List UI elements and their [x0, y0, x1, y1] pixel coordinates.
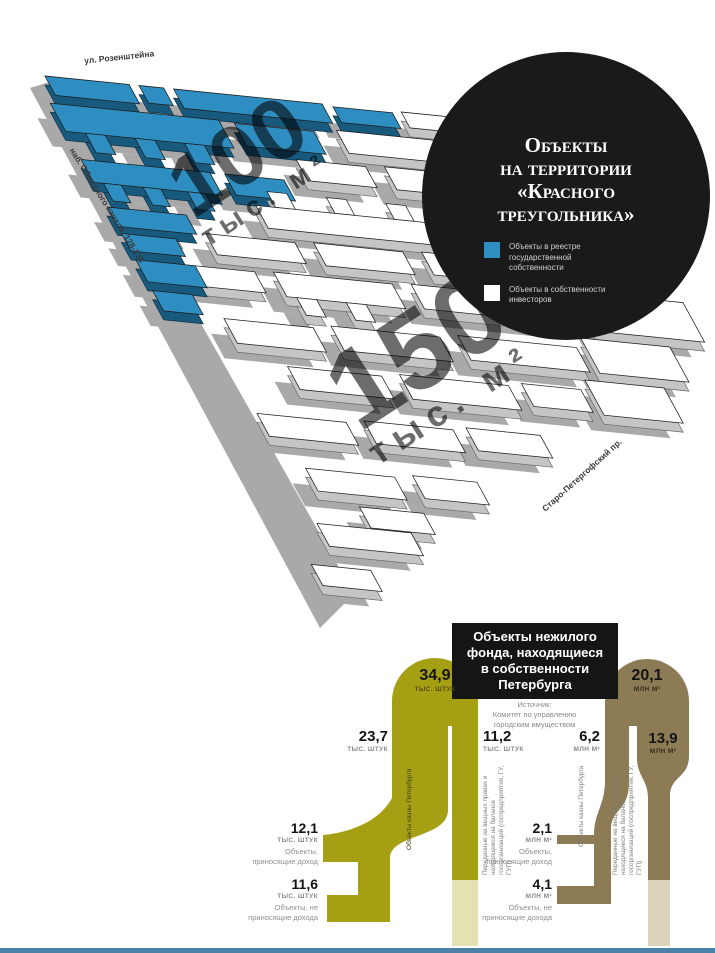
left-kazna-rotated-label: Объекты казны Петербурга — [406, 750, 414, 850]
unit: млн м² — [637, 748, 689, 755]
chart-source: Источник: Комитет по управлению городски… — [462, 700, 607, 730]
left-profitable-value: 12,1 тыс. штук Объекты, приносящие доход — [243, 820, 318, 866]
callout-title: Объекты на территории «Красного треуголь… — [422, 134, 710, 226]
bottom-accent-bar — [0, 948, 715, 953]
right-total-value: 20,1 млн м² — [605, 667, 689, 693]
value: 23,7 — [359, 728, 388, 745]
callout-circle: Объекты на территории «Красного треуголь… — [422, 52, 710, 340]
callout-title-line: на территории — [422, 157, 710, 180]
unit: тыс. штук — [318, 746, 388, 753]
chart-title-line: в собственности — [454, 661, 616, 677]
chart-title-line: Петербурга — [454, 677, 616, 693]
source-line: Комитет по управлению — [462, 710, 607, 720]
value: 20,1 — [631, 667, 662, 684]
legend-label-investors: Объекты в собственности инвесторов — [509, 285, 621, 306]
unit: тыс. штук — [392, 686, 478, 693]
right-transferred-value: 13,9 млн м² — [637, 730, 689, 755]
pipe-right-transferred-pale — [648, 880, 670, 946]
legend-swatch-investors-white — [484, 285, 500, 301]
legend-item-state: Объекты в реестре государственной собств… — [484, 242, 710, 274]
unit: млн м² — [477, 837, 552, 844]
left-total-value: 34,9 тыс. штук — [392, 667, 478, 693]
label-text: Объекты казны Петербурга — [406, 750, 414, 850]
right-kazna-value: 6,2 млн м² — [533, 728, 600, 753]
callout-title-line: «Красного — [422, 180, 710, 203]
category-label: Объекты, не приносящие дохода — [243, 903, 318, 922]
legend-item-investors: Объекты в собственности инвесторов — [484, 285, 710, 306]
left-kazna-value: 23,7 тыс. штук — [318, 728, 388, 753]
value: 34,9 — [419, 667, 450, 684]
callout-title-line: Объекты — [422, 134, 710, 157]
right-kazna-rotated-label: Объекты казны Петербурга — [578, 747, 586, 847]
pipe-left-transferred — [452, 726, 478, 880]
unit: млн м² — [477, 893, 552, 900]
category-label: Объекты, не приносящие дохода — [477, 903, 552, 922]
pipe-left-transferred-pale — [452, 880, 478, 946]
chart-title-line: фонда, находящиеся — [454, 645, 616, 661]
label-text: Переданные на вещных правах и находящиес… — [612, 755, 644, 875]
legend-label-state: Объекты в реестре государственной собств… — [509, 242, 621, 274]
value: 11,6 — [292, 876, 318, 892]
left-unprofitable-value: 11,6 тыс. штук Объекты, не приносящие до… — [243, 876, 318, 922]
chart-title-line: Объекты нежилого — [454, 629, 616, 645]
right-profitable-value: 2,1 млн м² Объекты, приносящие доход — [477, 820, 552, 866]
legend-swatch-state-blue — [484, 242, 500, 258]
value: 12,1 — [291, 820, 318, 836]
value: 2,1 — [533, 820, 552, 836]
unit: млн м² — [533, 746, 600, 753]
label-text: Объекты казны Петербурга — [578, 747, 586, 847]
unit: млн м² — [605, 686, 689, 693]
category-label: Объекты, приносящие доход — [243, 847, 318, 866]
callout-title-line: треугольника» — [422, 203, 710, 226]
pipe-left-kazna — [323, 726, 448, 922]
source-line: Источник: — [462, 700, 607, 710]
infographic-page: 100 тыс. м² 150 тыс. м² ул. Розенштейна … — [0, 0, 715, 953]
value: 11,2 — [483, 728, 511, 745]
value: 4,1 — [533, 876, 552, 892]
right-transferred-rotated-label: Переданные на вещных правах и находящиес… — [612, 755, 644, 875]
category-label: Объекты, приносящие доход — [477, 847, 552, 866]
unit: тыс. штук — [243, 837, 318, 844]
unit: тыс. штук — [243, 893, 318, 900]
map-legend: Объекты в реестре государственной собств… — [484, 242, 710, 306]
value: 6,2 — [579, 728, 600, 745]
right-unprofitable-value: 4,1 млн м² Объекты, не приносящие дохода — [477, 876, 552, 922]
value: 13,9 — [648, 730, 677, 747]
